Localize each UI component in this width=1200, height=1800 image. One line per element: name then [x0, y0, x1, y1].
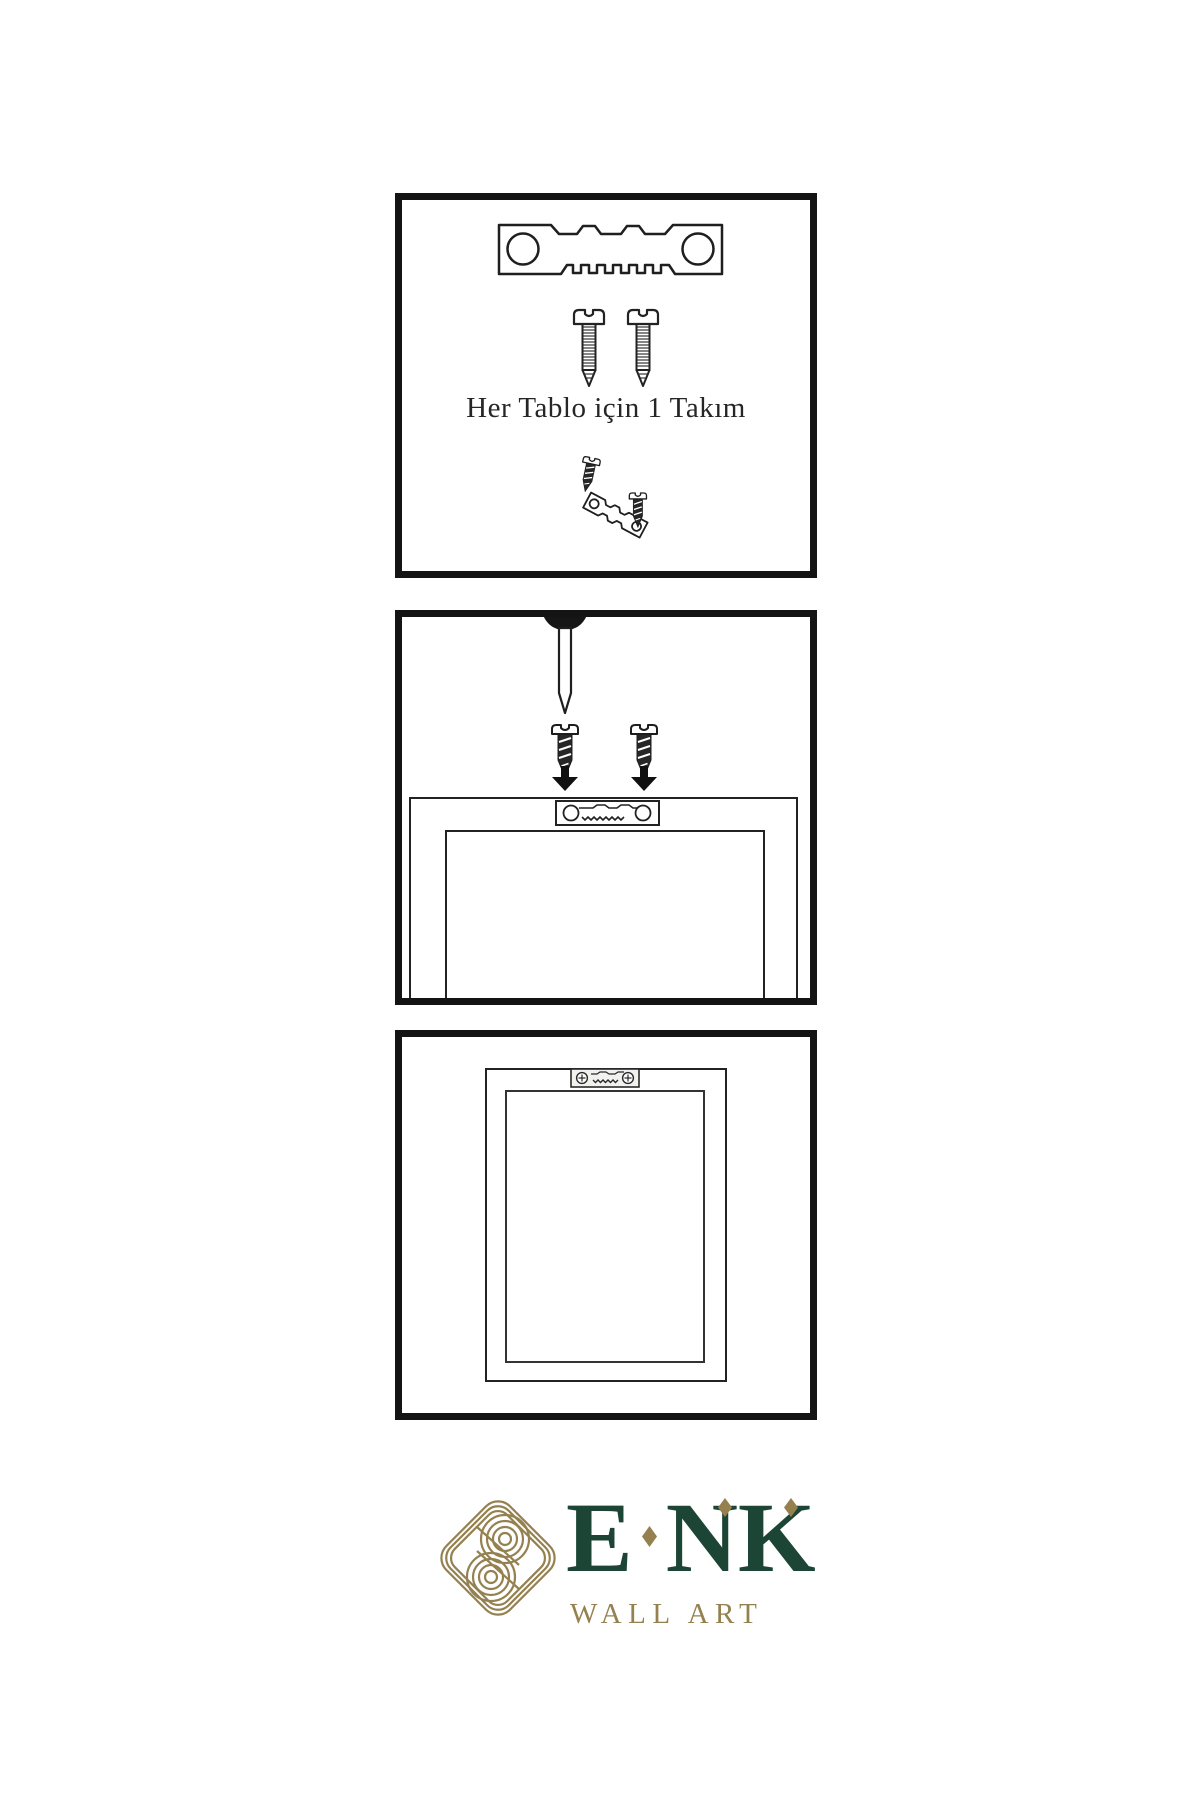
brand-letter-k: K [738, 1488, 816, 1588]
step-1-panel: Her Tablo için 1 Takım [395, 193, 817, 578]
instruction-sheet: Her Tablo için 1 Takım [0, 0, 1200, 1800]
brand-name: E N K [566, 1488, 816, 1588]
brand-subtitle: WALL ART [570, 1598, 763, 1631]
knot-logo-icon [433, 1489, 563, 1627]
screw-into-hanger-icon [572, 450, 682, 550]
wall-nail-icon [540, 615, 590, 717]
diamond-icon [718, 1498, 732, 1517]
screws-pair-icon [571, 306, 661, 388]
kit-caption: Her Tablo için 1 Takım [402, 392, 810, 425]
hanger-plate-icon [555, 800, 660, 826]
diamond-icon [784, 1498, 798, 1517]
step-2-panel [395, 610, 817, 1005]
mounted-hanger-plate-icon [570, 1068, 640, 1088]
brand-logo: E N K WALL ART [420, 1480, 840, 1650]
diamond-icon [642, 1526, 657, 1547]
sawtooth-hanger-icon [493, 223, 728, 278]
mounted-frame-inner-outline [505, 1090, 705, 1363]
step-3-panel [395, 1030, 817, 1420]
brand-letter-e: E [566, 1488, 633, 1588]
arrow-down-icon [552, 766, 657, 791]
frame-back-inner-outline [445, 830, 765, 1005]
